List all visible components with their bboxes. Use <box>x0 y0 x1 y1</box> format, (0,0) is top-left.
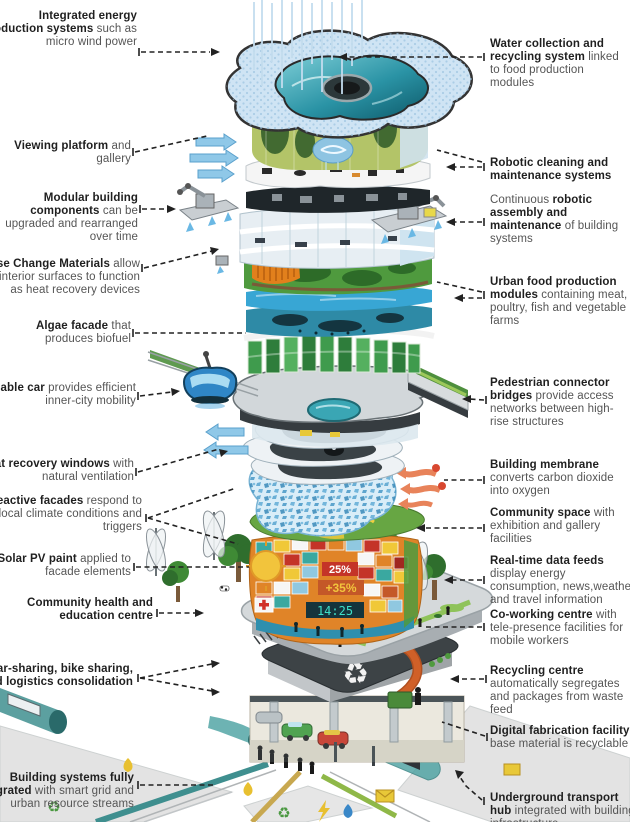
mail-icon <box>376 790 394 802</box>
label-modular-components: Modular building components can be upgra… <box>0 192 138 244</box>
robot-drone-lower-left <box>216 256 228 274</box>
label-segment: Building membrane <box>490 459 599 471</box>
robot-left <box>177 183 238 232</box>
label-solar-pv: Solar PV paint applied to facade element… <box>0 553 131 579</box>
label-segment: Solar PV paint <box>0 553 77 565</box>
wind-arrows-upper <box>190 134 238 182</box>
algae-facade <box>244 330 434 374</box>
label-segment: automatically segregates and packages fr… <box>490 678 623 716</box>
label-segment: Co-working centre <box>490 609 593 621</box>
label-water-collection: Water collection and recycling system li… <box>490 38 630 90</box>
label-segment: Heat recovery windows <box>0 458 110 470</box>
label-building-membrane: Building membrane converts carbon dioxid… <box>490 459 630 498</box>
label-segment: converts carbon dioxide into oxygen <box>490 472 614 497</box>
co2-arrows <box>396 464 446 510</box>
health-cross-icon <box>255 598 273 612</box>
label-phase-change: Phase Change Materials allow for interio… <box>0 258 140 297</box>
label-segment: Phase Change Materials <box>0 258 110 270</box>
label-segment: base material is recyclable <box>490 738 628 750</box>
label-segment: Digital fabrication facility <box>490 725 630 737</box>
label-building-systems: Building systems fully integrated with s… <box>0 772 134 811</box>
label-segment: Cable car <box>0 382 45 394</box>
label-recycling-centre: Recycling centre automatically segregate… <box>490 665 630 717</box>
label-cable-car: Cable car provides efficient inner-city … <box>0 382 136 408</box>
label-car-sharing: Car-sharing, bike sharing, and logistics… <box>0 663 133 689</box>
clock-display: 14:25 <box>306 602 364 618</box>
label-urban-food: Urban food production modules containing… <box>490 276 630 328</box>
label-segment: integrated with building infrastructure <box>490 805 630 822</box>
roof-pool <box>227 31 472 138</box>
infographic-future-building: ♻ ♻ <box>0 0 630 822</box>
label-segment: Real-time data feeds <box>490 555 604 567</box>
label-robotic-cleaning: Robotic cleaning and maintenance systems <box>490 157 630 183</box>
label-segment: provides efficient inner-city mobility <box>45 382 136 407</box>
wind-arrows-mid <box>204 424 248 458</box>
recycle-icon: ♻ <box>277 805 290 822</box>
label-digital-fabrication: Digital fabrication facility base materi… <box>490 725 630 751</box>
label-community-space: Community space with exhibition and gall… <box>490 507 624 546</box>
label-community-health: Community health and education centre <box>1 597 153 623</box>
label-viewing-platform: Viewing platform and gallery <box>0 140 131 166</box>
label-segment: Recycling centre <box>490 665 584 677</box>
label-segment: Reactive facades <box>0 495 83 507</box>
clock-text: 14:25 <box>317 604 353 618</box>
label-segment: Community space <box>490 507 591 519</box>
label-realtime-data: Real-time data feeds display energy cons… <box>490 555 630 607</box>
label-algae-facade: Algae facade that produces biofuel <box>0 320 131 346</box>
water-drop-icon <box>124 758 133 772</box>
label-segment: Robotic cleaning and maintenance systems <box>490 157 611 182</box>
energy-delta-text: +35% <box>325 581 356 595</box>
label-underground-hub: Underground transport hub integrated wit… <box>490 792 630 822</box>
label-segment: Algae facade <box>36 320 108 332</box>
energy-percent-text: 25% <box>329 564 351 576</box>
label-robotic-assembly: Continuous robotic assembly and maintena… <box>490 194 628 246</box>
cow <box>220 586 229 591</box>
label-coworking: Co-working centre with tele-presence fac… <box>490 609 630 648</box>
label-pedestrian-bridges: Pedestrian connector bridges provide acc… <box>490 377 630 429</box>
label-heat-recovery: Heat recovery windows with natural venti… <box>0 458 134 484</box>
label-segment: Continuous <box>490 194 552 206</box>
label-segment: Viewing platform <box>14 140 108 152</box>
label-segment: display energy consumption, news,weather… <box>490 568 630 606</box>
mail-icon <box>504 764 520 775</box>
label-segment: Community health and education centre <box>27 597 153 622</box>
label-reactive-facades: Reactive facades respond to local climat… <box>0 495 142 534</box>
label-segment: Car-sharing, bike sharing, and logistics… <box>0 663 133 688</box>
label-integrated-energy: Integrated energy production systems suc… <box>0 10 137 49</box>
underground-parking <box>250 696 464 774</box>
water-drop-icon <box>244 782 253 796</box>
